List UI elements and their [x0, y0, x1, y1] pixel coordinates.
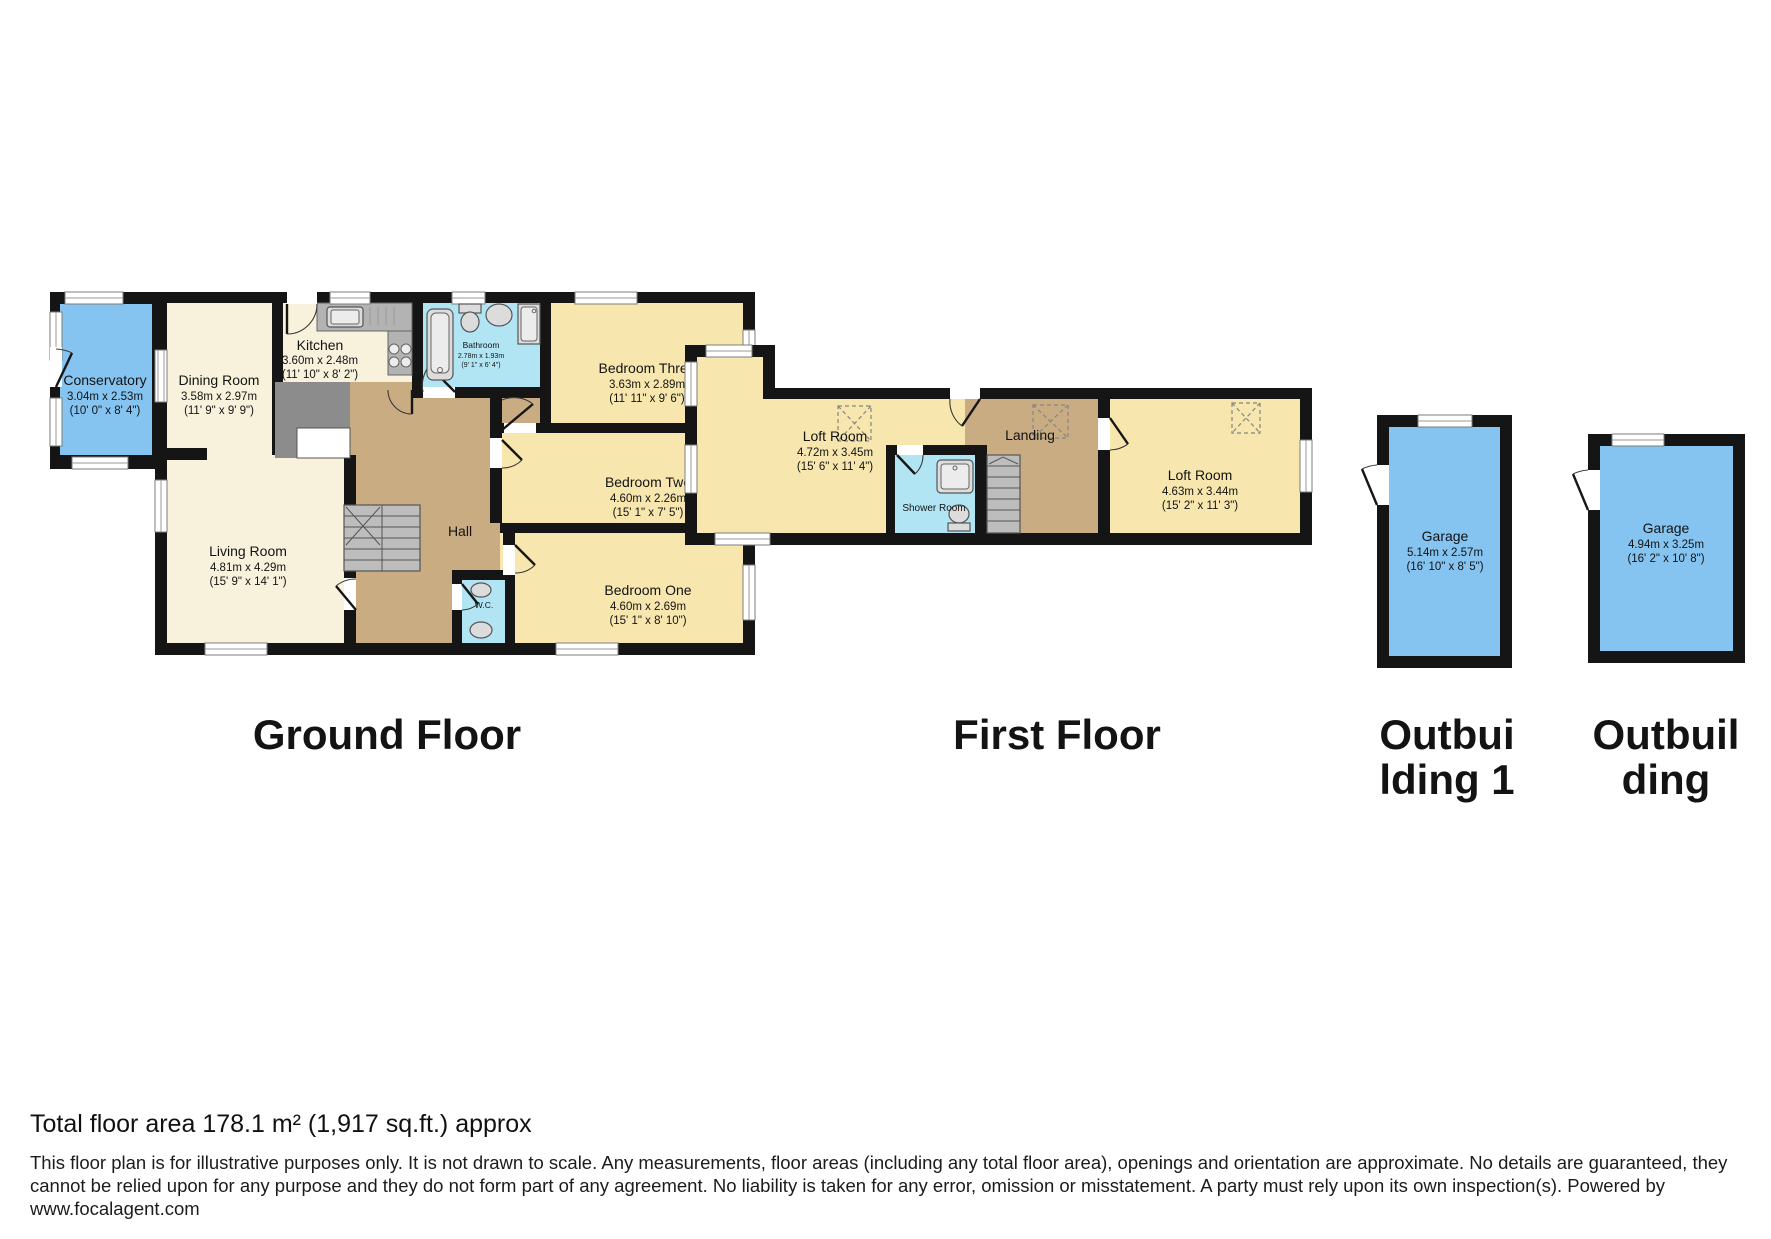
room-dim-imperial: (15' 1" x 8' 10") [609, 615, 686, 627]
room-dim-metric: 4.63m x 3.44m [1162, 486, 1238, 498]
outbuilding-1-plan: Garage 5.14m x 2.57m (16' 10" x 8' 5") [1362, 415, 1512, 668]
outbuilding-2-plan: Garage 4.94m x 3.25m (16' 2" x 10' 8") [1573, 434, 1745, 663]
room-dim-metric: 4.72m x 3.45m [797, 447, 873, 459]
room-label: Bathroom [463, 340, 500, 350]
room-dim-imperial: (15' 6" x 11' 4") [797, 461, 873, 473]
room-dim-imperial: (16' 10" x 8' 5") [1406, 561, 1483, 573]
room-dim-metric: 3.04m x 2.53m [67, 391, 143, 403]
room-dim-imperial: (15' 2" x 11' 3") [1162, 500, 1238, 512]
room-dim-metric: 3.58m x 2.97m [181, 391, 257, 403]
floorplan-page: Conservatory 3.04m x 2.53m (10' 0" x 8' … [0, 0, 1771, 1239]
room-dim-imperial: (11' 11" x 9' 6") [609, 393, 685, 405]
room-label: Living Room [209, 543, 287, 559]
room-label: Hall [448, 523, 472, 539]
room-dim-imperial: (16' 2" x 10' 8") [1627, 553, 1704, 565]
room-label: Dining Room [179, 372, 260, 388]
room-label: W.C. [475, 600, 493, 610]
room-dim-metric: 4.94m x 3.25m [1628, 539, 1704, 551]
room-label: Garage [1643, 520, 1690, 536]
toilet-icon [459, 304, 481, 332]
room-dim-imperial: (15' 1" x 7' 5") [613, 507, 684, 519]
stairs-icon [987, 455, 1020, 533]
room-label: Bedroom One [604, 582, 691, 598]
wc-toilet-icon [470, 622, 492, 638]
room-label: Kitchen [297, 337, 344, 353]
shower-icon [518, 304, 540, 344]
sink-icon [486, 304, 512, 326]
shower-tray-icon [937, 460, 973, 493]
room-dim-imperial: (10' 0" x 8' 4") [70, 405, 141, 417]
first-floor-plan: Loft Room 4.72m x 3.45m (15' 6" x 11' 4"… [685, 345, 1312, 545]
room-label: Conservatory [63, 372, 146, 388]
room-loft-left [697, 357, 763, 533]
room-label: Landing [1005, 427, 1055, 443]
room-dim-metric: 2.78m x 1.93m [458, 353, 504, 360]
room-dim-imperial: (11' 9" x 9' 9") [184, 405, 254, 417]
room-loft-right [1110, 399, 1300, 533]
ground-floor-title: Ground Floor [253, 712, 521, 757]
room-label: Bedroom Three [598, 360, 695, 376]
room-dim-metric: 4.60m x 2.69m [610, 601, 686, 613]
room-label: Shower Room [902, 503, 965, 514]
room-dim-imperial: (11' 10" x 8' 2") [282, 369, 358, 381]
wc-sink-icon [471, 583, 491, 597]
room-label: Loft Room [1168, 467, 1233, 483]
total-floor-area: Total floor area 178.1 m² (1,917 sq.ft.)… [30, 1110, 532, 1139]
room-dim-metric: 3.60m x 2.48m [282, 355, 358, 367]
stairs-icon [344, 505, 420, 571]
first-floor-title: First Floor [953, 712, 1161, 757]
ground-floor-plan: Conservatory 3.04m x 2.53m (10' 0" x 8' … [50, 292, 755, 655]
room-dim-metric: 5.14m x 2.57m [1407, 547, 1483, 559]
room-hall-upper [423, 398, 540, 423]
room-dim-metric: 3.63m x 2.89m [609, 379, 685, 391]
room-dim-metric: 4.81m x 4.29m [210, 562, 286, 574]
disclaimer-text: This floor plan is for illustrative purp… [30, 1152, 1742, 1221]
room-dim-metric: 4.60m x 2.26m [610, 493, 686, 505]
outbuilding-1-title: Outbui lding 1 [1379, 712, 1514, 803]
bathtub-icon [427, 309, 453, 380]
cupboard [297, 428, 350, 458]
room-label: Bedroom Two [605, 474, 691, 490]
floorplan-drawing: Conservatory 3.04m x 2.53m (10' 0" x 8' … [0, 0, 1771, 1239]
room-dim-imperial: (9' 1" x 6' 4") [461, 362, 500, 369]
outbuilding-2-title: Outbuil ding [1593, 712, 1740, 803]
room-dim-imperial: (15' 9" x 14' 1") [209, 576, 286, 588]
room-label: Garage [1422, 528, 1469, 544]
room-label: Loft Room [803, 428, 868, 444]
